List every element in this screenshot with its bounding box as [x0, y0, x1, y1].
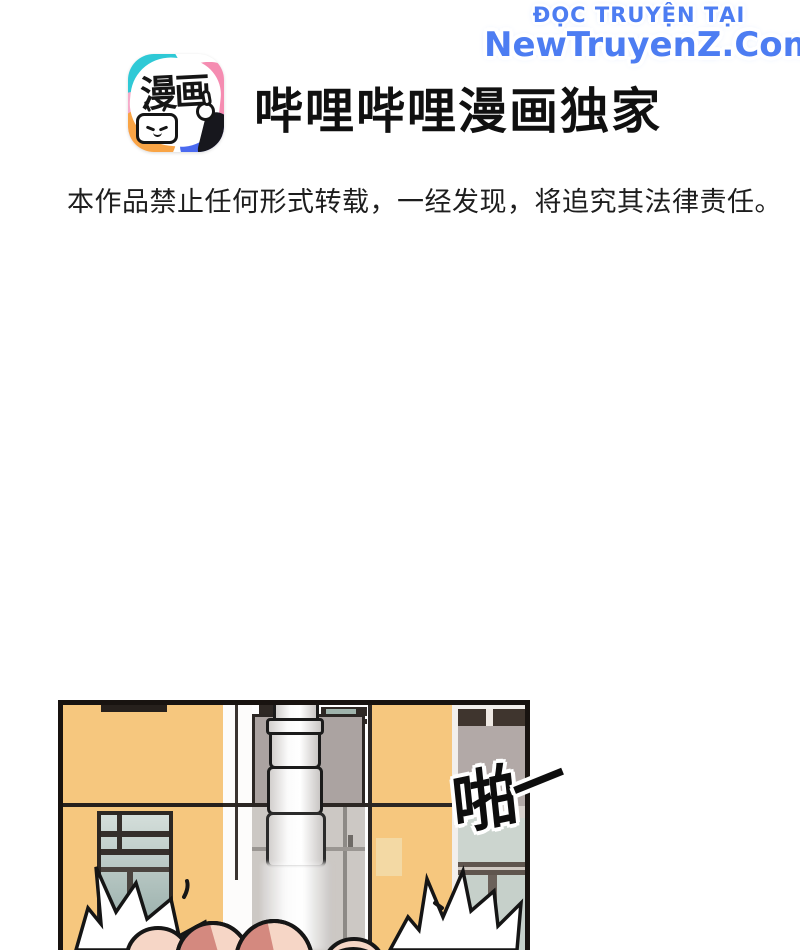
- drainpipe-segment: [267, 766, 323, 815]
- drainpipe-segment: [269, 732, 321, 769]
- bilibili-comics-app-icon: 漫画: [128, 54, 224, 152]
- page-title: 哔哩哔哩漫画独家: [254, 72, 662, 143]
- motion-tick: [184, 881, 188, 897]
- window-mullion: [101, 831, 169, 837]
- watermark-tagline: ĐỌC TRUYỆN TẠI: [484, 4, 794, 27]
- window-slit: [101, 705, 167, 712]
- watermark-site-name: NewTruyenZ.Com: [484, 27, 794, 64]
- window-header-gap: [486, 709, 493, 726]
- impact-fx-layer: [58, 845, 540, 950]
- tv-mascot-mouth: [153, 131, 162, 137]
- wall-orange-left-upper: [63, 705, 223, 805]
- comic-page: { "watermark": { "line1": "ĐỌC TRUYỆN TẠ…: [0, 0, 800, 950]
- tv-mascot-icon: [136, 113, 178, 144]
- copyright-disclaimer: 本作品禁止任何形式转载，一经发现，将追究其法律责任。: [67, 180, 757, 219]
- impact-flash-right: [390, 871, 521, 950]
- site-watermark: ĐỌC TRUYỆN TẠI NewTruyenZ.Com: [484, 4, 794, 64]
- window-header-band: [458, 709, 530, 726]
- floor-divider-right: [372, 803, 452, 807]
